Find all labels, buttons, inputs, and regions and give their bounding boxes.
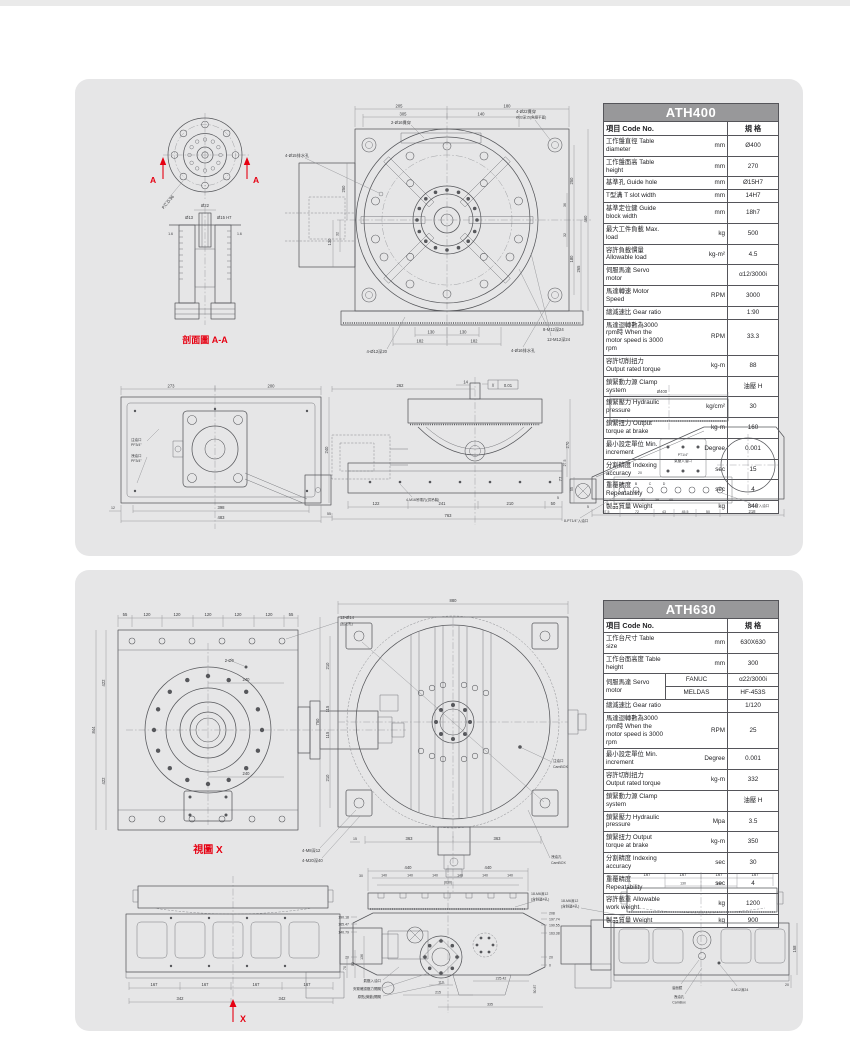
dim-label: 140 xyxy=(457,874,463,878)
dim-label: 57.5 xyxy=(603,510,610,514)
callout-label: CamBOX xyxy=(553,765,568,769)
dim-label: 165.47 xyxy=(338,923,349,927)
spec-row-value: 1/120 xyxy=(728,700,779,713)
dim-label: 1.6 xyxy=(168,232,173,236)
dim-label: 335 xyxy=(487,1003,493,1007)
servo-fanuc-value: α22/3000i xyxy=(728,674,779,687)
spec-row-label: 最小設定單位 Min. increment xyxy=(604,749,666,770)
dim-label: 422 xyxy=(101,777,106,785)
dim-label: 20 xyxy=(549,956,553,960)
callout-label: 4-M16吊環孔(供吊裝) xyxy=(406,497,439,502)
spec-colhead: 項目 Code No. 規 格 xyxy=(604,122,779,136)
spec-row: 鎖緊動力源 Clamp system 油壓 H xyxy=(604,790,779,811)
spec-row-unit: mm xyxy=(666,136,728,157)
spec-row-label: 工作盤直徑 Table diameter xyxy=(604,136,666,157)
dim-label: 440 xyxy=(485,865,493,870)
dim-label: 72 xyxy=(635,510,639,514)
spec-row-value: 4.5 xyxy=(728,244,779,265)
windows xyxy=(619,929,785,963)
dim-label: 205 xyxy=(396,104,404,109)
spec-row-label: 馬達迴轉數為3000 rpm時 When the motor speed is … xyxy=(604,319,666,355)
dim-label: 167 xyxy=(151,982,159,987)
callout-label: 4-Ø12深20 xyxy=(367,348,388,355)
callout-label: 氣壓入油口 xyxy=(364,978,382,983)
dim-label: 262 xyxy=(397,383,405,388)
dim-label: 342 xyxy=(177,996,185,1001)
dim-label: 50 xyxy=(551,501,556,506)
dim-label: 763 xyxy=(445,513,453,518)
dim-label: 210 xyxy=(507,501,515,506)
spec-row-value: Ø15H7 xyxy=(728,177,779,190)
dim-label: 215 xyxy=(435,991,441,995)
panel-ath400: P.C.D.96 A A xyxy=(75,79,803,556)
dim-label: P.C.D.96 xyxy=(161,194,176,210)
callout-label: 2-Ø6 xyxy=(225,658,235,663)
spec-row-value: 0.001 xyxy=(728,749,779,770)
dim-label: 130 xyxy=(428,330,436,335)
dim-label: 167 xyxy=(644,872,652,877)
dim-label: Ø22 xyxy=(201,203,210,208)
spec-row-label: 最大工件負載 Max. load xyxy=(604,223,666,244)
spec-row-label: 總減速比 Gear ratio xyxy=(604,306,666,319)
dim-label: 265 xyxy=(576,265,581,273)
spec-row: T型溝 T slot width mm 14H7 xyxy=(604,190,779,203)
dim-label: 241 xyxy=(439,501,447,506)
spec-row-unit: kg-m xyxy=(666,832,728,853)
callout-label: 8-M12深24 xyxy=(543,326,564,333)
spec-row-label: 容許負載慣量 Allowable load xyxy=(604,244,666,265)
spec-row-unit: kg xyxy=(666,223,728,244)
dim-label: 43 xyxy=(662,510,666,514)
dim-label: 120 xyxy=(235,612,243,617)
dim-label: 32 xyxy=(336,232,340,236)
spec-row-unit xyxy=(666,306,728,319)
callout-label: 2-Ø16貫穿 xyxy=(391,119,411,126)
dim-label: 167 xyxy=(253,982,261,987)
spec-row-label: 容許切削扭力 Output rated torque xyxy=(604,356,666,377)
port-label: A xyxy=(621,482,624,486)
spec-row-label: 馬達轉速 Motor Speed xyxy=(604,286,666,307)
spec-row-unit: Degree xyxy=(666,749,728,770)
spec-row-unit: RPM xyxy=(666,713,728,749)
spec-row-unit: mm xyxy=(666,177,728,190)
dim-label: 140 xyxy=(407,874,413,878)
dim-label: 240 xyxy=(243,677,251,682)
callout-label: 氣壓入油口 xyxy=(674,458,692,463)
spec-row-label: 工作台面高度 Table height xyxy=(604,653,666,674)
dim-label: 180 xyxy=(569,255,574,263)
spec-row: 基準定位鍵 Guide block width mm 18h7 xyxy=(604,203,779,224)
dim-label: 305 xyxy=(400,112,408,117)
spec-row-label: 基準孔 Guide hole xyxy=(604,177,666,190)
dim-label: 483 xyxy=(218,515,226,520)
dim-label: 398 xyxy=(218,505,226,510)
section-arrow-left: A xyxy=(150,157,166,185)
dim-label: 50 xyxy=(706,510,710,514)
page-top-strip xyxy=(0,0,850,6)
dim-label: 210 xyxy=(325,662,330,670)
spec-row-value: 25 xyxy=(728,713,779,749)
spec-row: 鎖緊壓力 Hydraulic pressure Mpa 3.5 xyxy=(604,811,779,832)
callout-label: 12-M12深24 xyxy=(547,336,571,343)
spec-row-label: 總減速比 Gear ratio xyxy=(604,700,666,713)
spec-row-value: Ø400 xyxy=(728,136,779,157)
dim-label: 20 xyxy=(638,471,642,475)
dim-label: 240 xyxy=(324,446,329,454)
dim-label: 422 xyxy=(101,679,106,687)
dim-label: 250 xyxy=(341,185,346,193)
spec-row: 工作盤直徑 Table diameter mm Ø400 xyxy=(604,136,779,157)
callout-label: 4-M20深40 xyxy=(302,857,323,864)
spec-row-value: 332 xyxy=(728,770,779,791)
dim-label: 0 xyxy=(549,964,551,968)
dim-label: 130 xyxy=(327,238,332,246)
spec-row-label: 鎖緊扭力 Output torque at brake xyxy=(604,832,666,853)
dim-label: 180 xyxy=(504,104,512,109)
col-item-label: 項目 Code No. xyxy=(604,619,728,633)
spec-row-value: 630X630 xyxy=(728,633,779,654)
dim-label: 273 xyxy=(168,384,176,389)
dim-label: 130 xyxy=(716,882,722,886)
spec-row-value: 350 xyxy=(728,832,779,853)
spec-row: 工作台尺寸 Table size mm 630X630 xyxy=(604,633,779,654)
dim-label: 342 xyxy=(279,996,287,1001)
col-item-label: 項目 Code No. xyxy=(604,122,728,136)
dim-label: 20 xyxy=(345,956,349,960)
dim-label: 120 xyxy=(144,612,152,617)
spec-row-unit: mm xyxy=(666,653,728,674)
dim-label: 12 xyxy=(111,506,115,510)
dim-label: 45 xyxy=(627,498,631,502)
drawing-side-view-left-ath400: 注油口 PF3/4" 洩油口 PF3/4" 273 200 398 483 12… xyxy=(93,381,340,531)
dim-label: 50.87 xyxy=(533,985,537,994)
dim-label: 55 xyxy=(570,487,574,491)
spec-row: 鎖緊扭力 Output torque at brake kg-m 350 xyxy=(604,832,779,853)
dim-label: 55 xyxy=(289,612,294,617)
callout-label: 洩油孔 xyxy=(674,994,685,999)
port-label: B xyxy=(635,482,638,486)
spec-row-unit: mm xyxy=(666,633,728,654)
dim-label: 182 xyxy=(417,339,425,344)
dim-label: 750 xyxy=(315,718,320,726)
dim-label: 167 xyxy=(202,982,210,987)
dim-label: 14 xyxy=(463,380,468,385)
spec-row: 最小設定單位 Min. increment Degree 0.001 xyxy=(604,749,779,770)
dim-label: 122 xyxy=(373,501,381,506)
servo-meldas-label: MELDAS xyxy=(666,687,728,700)
spec-row-value: 33.3 xyxy=(728,319,779,355)
spec-row-servo-fanuc: 伺服馬達 Servo motor FANUC α22/3000i xyxy=(604,674,779,687)
callout-label: (含斜邊4孔) xyxy=(561,904,579,909)
spec-row-label: 容許切削扭力 Output rated torque xyxy=(604,770,666,791)
spec-row: 工作台面高度 Table height mm 300 xyxy=(604,653,779,674)
dim-label: 115 xyxy=(325,705,330,712)
drawing-elevation-ath400: 14 262 // 0.01 270 77 5 122 241 210 50 7… xyxy=(330,375,580,530)
spec-row-unit: RPM xyxy=(666,286,728,307)
spec-row-value: 3.5 xyxy=(728,811,779,832)
spec-row-value: 18h7 xyxy=(728,203,779,224)
spec-row: 最大工件負載 Max. load kg 500 xyxy=(604,223,779,244)
spec-row-label: 鎖緊動力源 Clamp system xyxy=(604,790,666,811)
dim-label: 880 xyxy=(450,598,458,603)
drawing-front-view-ath400: 205 180 305 140 250 130 32 250 180 265 4… xyxy=(283,101,593,359)
dim-label: 32 xyxy=(563,233,567,237)
flatness-symbol: // xyxy=(492,383,495,388)
dim-label: 182 xyxy=(471,339,479,344)
callout-label: PF3/4" xyxy=(131,459,142,463)
dim-label: 130 xyxy=(460,330,468,335)
spec-row-value: 1:90 xyxy=(728,306,779,319)
drawing-section-aa: P.C.D.96 A A xyxy=(143,107,275,349)
callout-label: 4-Ø22貫穿 xyxy=(516,108,536,115)
dim-label: 363 xyxy=(494,836,502,841)
spec-row-unit: mm xyxy=(666,190,728,203)
servo-meldas-value: HF-453S xyxy=(728,687,779,700)
spec-row-unit: mm xyxy=(666,203,728,224)
dim-label: 120 xyxy=(205,612,213,617)
callout-label: Ø33深15(魚眼平面) xyxy=(516,115,546,120)
callout-label: 油面鏡 xyxy=(672,985,683,990)
callout-label: 注油口 xyxy=(131,437,142,442)
dim-label: 15 xyxy=(353,837,357,841)
col-spec-label: 規 格 xyxy=(728,122,779,136)
spec-row-label: 伺服馬達 Servo motor xyxy=(604,265,666,286)
dim-label: 210 xyxy=(325,774,330,782)
spec-row: 總減速比 Gear ratio 1/120 xyxy=(604,700,779,713)
spec-row: 容許切削扭力 Output rated torque kg-m 88 xyxy=(604,356,779,377)
spec-row: 馬達轉速 Motor Speed RPM 3000 xyxy=(604,286,779,307)
callout-label: PT1/4" xyxy=(678,453,689,457)
spec-row-unit xyxy=(666,700,728,713)
spec-table-title: ATH400 xyxy=(603,103,779,121)
spec-row-unit: Mpa xyxy=(666,811,728,832)
callout-label: 洩油孔 xyxy=(551,854,562,859)
spec-row-label: T型溝 T slot width xyxy=(604,190,666,203)
drawing-section-view-ath630: 440 440 140 140 140 140 140 140 (630) 30… xyxy=(333,863,565,1023)
dim-label: 158 xyxy=(792,945,797,953)
dim-label: (630) xyxy=(444,881,452,885)
panel-ath630: 2-Ø6 55 120 120 120 120 120 55 422 422 8… xyxy=(75,570,803,1031)
dim-label: 167 xyxy=(716,872,724,877)
callout-label: 18-M6深12 xyxy=(531,891,548,896)
spec-colhead: 項目 Code No. 規 格 xyxy=(604,619,779,633)
view-x-caption: 視圖 X xyxy=(192,843,223,856)
spec-row-unit: kg-m xyxy=(666,356,728,377)
dim-label: 55 xyxy=(123,612,128,617)
spec-row-unit: kg-m xyxy=(666,770,728,791)
spec-row-label: 工作台尺寸 Table size xyxy=(604,633,666,654)
spec-row-value: α12/3000i xyxy=(728,265,779,286)
flatness-value: 0.01 xyxy=(504,383,513,388)
spec-row-value: 500 xyxy=(728,223,779,244)
callout-label: 原點(微動)開關 xyxy=(358,994,382,999)
callout-label: (含斜邊4孔) xyxy=(531,897,549,902)
port-label: C xyxy=(649,482,652,486)
dim-label: 120 xyxy=(266,612,274,617)
dim-label: 363 xyxy=(406,836,414,841)
dim-label: 115 xyxy=(325,731,330,738)
dim-label: 140 xyxy=(478,112,486,117)
spec-row-value: 270 xyxy=(728,156,779,177)
callout-label: CamBox xyxy=(672,1001,686,1005)
dim-label: 20 xyxy=(785,983,789,987)
dim-label: 225.42 xyxy=(496,977,507,981)
windows xyxy=(137,922,319,958)
callout-label: 注油口 xyxy=(553,758,564,763)
view-x-arrow-label: X xyxy=(240,1014,246,1024)
spec-row-unit: kg-m² xyxy=(666,244,728,265)
spec-row-unit xyxy=(666,790,728,811)
dim-label: 460 xyxy=(583,215,588,223)
dim-label: 844 xyxy=(91,726,96,734)
corner-pads xyxy=(346,623,558,816)
section-arrow-right: A xyxy=(244,157,259,185)
spec-row: 基準孔 Guide hole mm Ø15H7 xyxy=(604,177,779,190)
dim-label: 140 xyxy=(482,874,488,878)
dim-label: 140 xyxy=(381,874,387,878)
dim-label: 36 xyxy=(563,203,567,207)
servo-label: 伺服馬達 Servo motor xyxy=(604,674,666,700)
drawing-side-view-ath630: 167 167 167 167 130 130 158 20 18-M6深12 … xyxy=(559,868,804,1013)
callout-label: 4-Ø16排水孔 xyxy=(511,347,536,354)
spec-row-value: 3000 xyxy=(728,286,779,307)
spec-row-label: 鎖緊壓力 Hydraulic pressure xyxy=(604,811,666,832)
spec-row-label: 馬達迴轉數為3000 rpm時 When the motor speed is … xyxy=(604,713,666,749)
dim-label: 140 xyxy=(432,874,438,878)
spec-row-value: 14H7 xyxy=(728,190,779,203)
spec-row-label: 工作盤面高 Table height xyxy=(604,156,666,177)
callout-label: 4-M8深12 xyxy=(302,847,321,854)
callout-label: 18-M6深12 xyxy=(561,898,578,903)
dim-label: 5 xyxy=(587,505,589,509)
spec-row-value: 油壓 H xyxy=(728,790,779,811)
spec-row-value: 300 xyxy=(728,653,779,674)
dim-label: Ø13 xyxy=(185,215,194,220)
dim-label: 440 xyxy=(405,865,413,870)
flatness-frame: // 0.01 xyxy=(482,380,518,389)
col-spec-label: 規 格 xyxy=(728,619,779,633)
spec-row-unit xyxy=(666,265,728,286)
dim-label: 1.6 xyxy=(237,232,242,236)
dim-label: 208 xyxy=(549,912,555,916)
spec-row: 容許切削扭力 Output rated torque kg-m 332 xyxy=(604,770,779,791)
caption-section-aa: 剖面圖 A-A xyxy=(182,334,228,345)
dim-label: 27.5 xyxy=(563,460,567,467)
spec-row: 總減速比 Gear ratio 1:90 xyxy=(604,306,779,319)
servo-fanuc-label: FANUC xyxy=(666,674,728,687)
dim-label: 140 xyxy=(507,874,513,878)
dim-label: 40 xyxy=(669,498,673,502)
drawing-side-view-right-ath400: Ø400 PT1/4" 氣壓入油口 A B C D 45 37 39 40 xyxy=(562,381,797,531)
dim-label: 130 xyxy=(680,882,686,886)
callout-label: PT1/4"入油口 xyxy=(748,503,770,508)
dim-label: 200 xyxy=(268,384,276,389)
spec-row: 工作盤面高 Table height mm 270 xyxy=(604,156,779,177)
dim-label: 167 xyxy=(304,982,312,987)
dim-label: 140.79 xyxy=(338,931,349,935)
catalog-page: { "page": { "top_strip_color": "#eaeaea"… xyxy=(0,0,850,1042)
dim-label: 37 xyxy=(641,498,645,502)
callout-label: 洩油口 xyxy=(131,453,142,458)
spec-row: 馬達迴轉數為3000 rpm時 When the motor speed is … xyxy=(604,319,779,355)
drawing-top-view-ath630: 880 210 115 115 210 750 363 363 15 4-M8深… xyxy=(300,592,590,897)
callout-label: 4-M12深24 xyxy=(731,987,748,992)
spec-table-title: ATH630 xyxy=(603,600,779,618)
spec-row-unit: RPM xyxy=(666,319,728,355)
dim-label: 190.18 xyxy=(338,916,349,920)
dim-label: 250 xyxy=(569,177,574,185)
dim-label: 30 xyxy=(359,874,363,878)
section-arrow-label: A xyxy=(253,175,259,185)
port-label: D xyxy=(663,482,666,486)
dim-label: 5 xyxy=(557,496,559,500)
spec-row-unit: mm xyxy=(666,156,728,177)
callout-label: 4-Ø15排水孔 xyxy=(285,152,310,159)
callout-label: 8-PT1/4"入油口 xyxy=(564,518,589,523)
callout-label: 夾緊確認壓力開關 xyxy=(353,986,381,991)
dim-label: 39 xyxy=(655,498,659,502)
dim-label: 120 xyxy=(174,612,182,617)
section-arrow-label: A xyxy=(150,175,156,185)
left-dim-stack: 190.18 165.47 140.79 20 xyxy=(338,916,349,960)
dim-label: Ø15 H7 xyxy=(217,215,232,220)
dim-label: 240 xyxy=(243,771,251,776)
spec-row: 容許負載慣量 Allowable load kg-m² 4.5 xyxy=(604,244,779,265)
spec-row-value: 88 xyxy=(728,356,779,377)
dim-label: 45.5 xyxy=(682,510,689,514)
spec-row-label: 基準定位鍵 Guide block width xyxy=(604,203,666,224)
view-x-arrow: X xyxy=(230,999,247,1024)
dim-label: 167 xyxy=(752,872,760,877)
dim-label: 167 xyxy=(680,872,688,877)
dim-label: Ø400 xyxy=(657,389,668,394)
dim-label: 218 xyxy=(749,509,757,514)
spec-row: 伺服馬達 Servo motor α12/3000i xyxy=(604,265,779,286)
callout-label: PF3/4" xyxy=(131,443,142,447)
spec-row: 馬達迴轉數為3000 rpm時 When the motor speed is … xyxy=(604,713,779,749)
